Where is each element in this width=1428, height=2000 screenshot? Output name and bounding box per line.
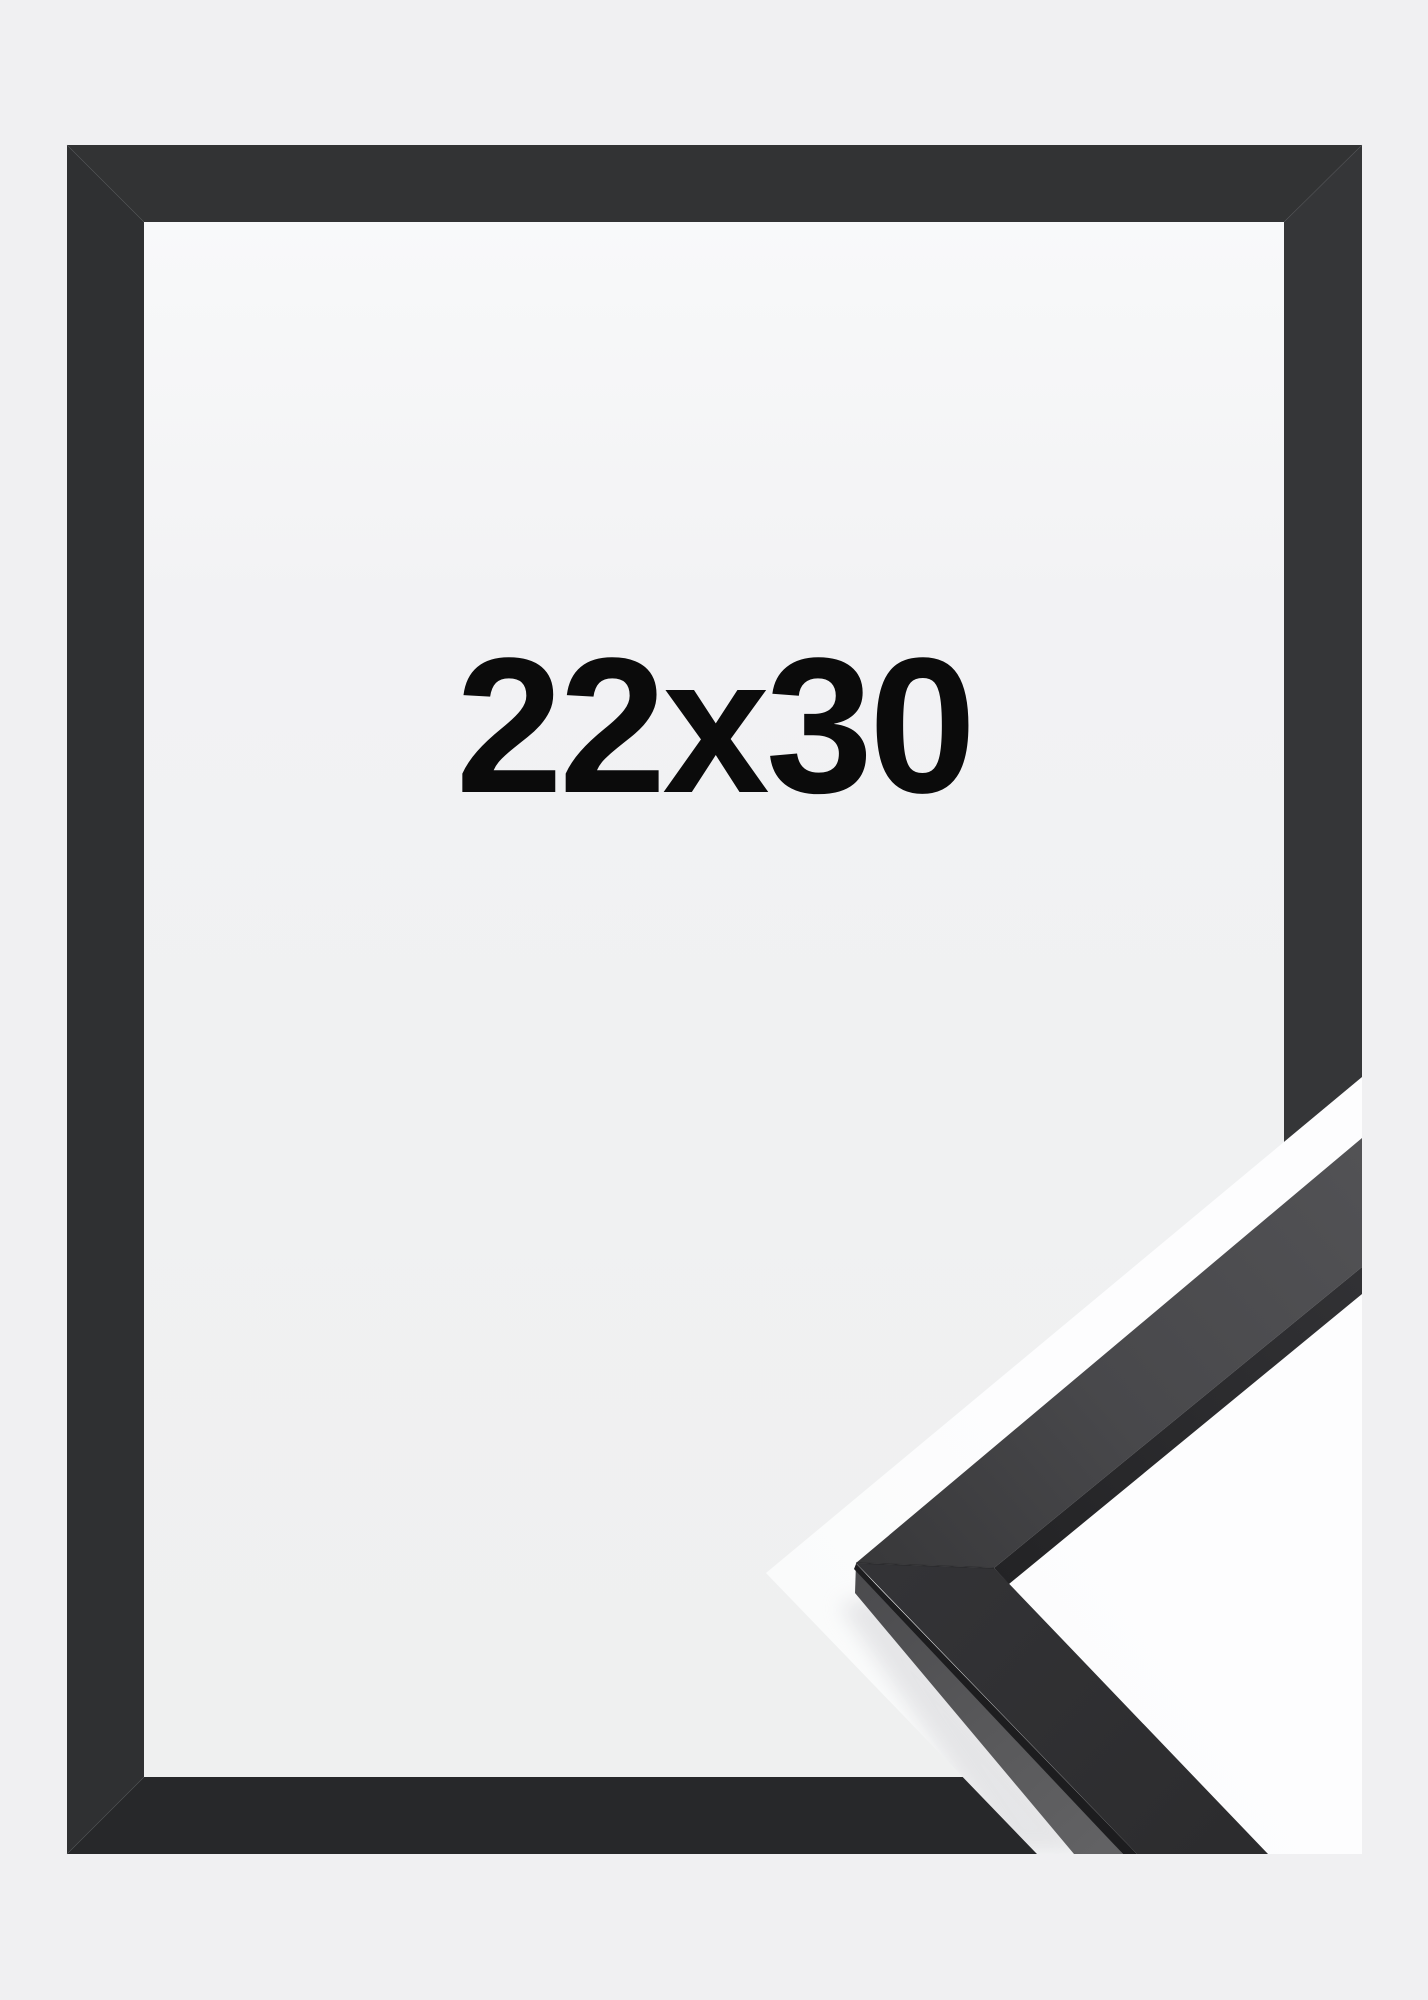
svg-text:22x30: 22x30 xyxy=(456,617,973,833)
